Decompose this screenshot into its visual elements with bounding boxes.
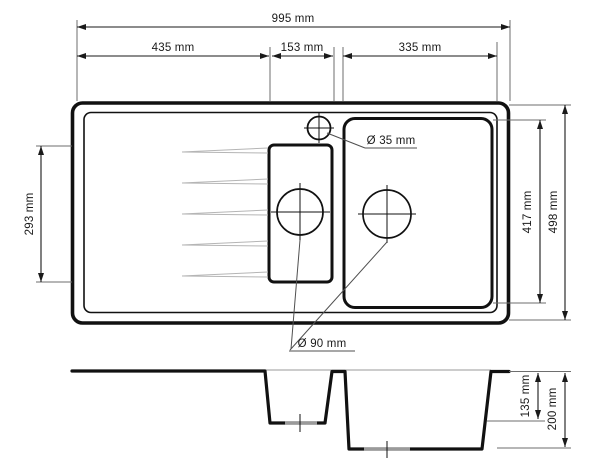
dimension-drainer-width: 435 mm (77, 42, 270, 101)
dimension-half-bowl-depth: 135 mm (487, 373, 545, 421)
faucet-hole-label: Ø 35 mm (367, 135, 416, 147)
drainer-height-label: 293 mm (24, 193, 36, 236)
main-bowl-depth-label: 200 mm (547, 388, 559, 431)
top-view: Ø 35 mm Ø 90 mm (73, 103, 509, 351)
main-bowl-height-label: 417 mm (522, 191, 534, 234)
dimension-main-bowl-height: 417 mm (493, 120, 546, 303)
faucet-hole-callout: Ø 35 mm (327, 133, 417, 148)
dimension-half-bowl-width: 153 mm (272, 42, 334, 101)
drain-hole-label: Ø 90 mm (298, 338, 347, 350)
half-bowl-depth-label: 135 mm (520, 375, 532, 418)
main-bowl-drain (358, 185, 416, 243)
drainer-width-label: 435 mm (152, 42, 195, 54)
overall-width-label: 995 mm (272, 13, 315, 25)
sink-outer-edge (73, 103, 509, 323)
dimension-drainer-height: 293 mm (24, 146, 72, 282)
half-bowl-width-label: 153 mm (281, 42, 324, 54)
main-bowl-width-label: 335 mm (399, 42, 442, 54)
dimension-main-bowl-depth: 200 mm (497, 372, 571, 449)
overall-depth-label: 498 mm (548, 191, 560, 234)
half-bowl-drain (271, 183, 330, 240)
dimension-main-bowl-width: 335 mm (343, 42, 497, 101)
drawing-svg: Ø 35 mm Ø 90 mm 995 mm 435 mm 153 mm (0, 0, 600, 466)
drainer-grooves (182, 148, 268, 277)
section-profile (72, 371, 509, 449)
faucet-hole (304, 113, 334, 143)
dimension-overall-width: 995 mm (77, 13, 510, 101)
sink-technical-drawing: Ø 35 mm Ø 90 mm 995 mm 435 mm 153 mm (0, 0, 600, 466)
drain-holes-callout: Ø 90 mm (289, 240, 387, 351)
section-view (72, 370, 509, 458)
